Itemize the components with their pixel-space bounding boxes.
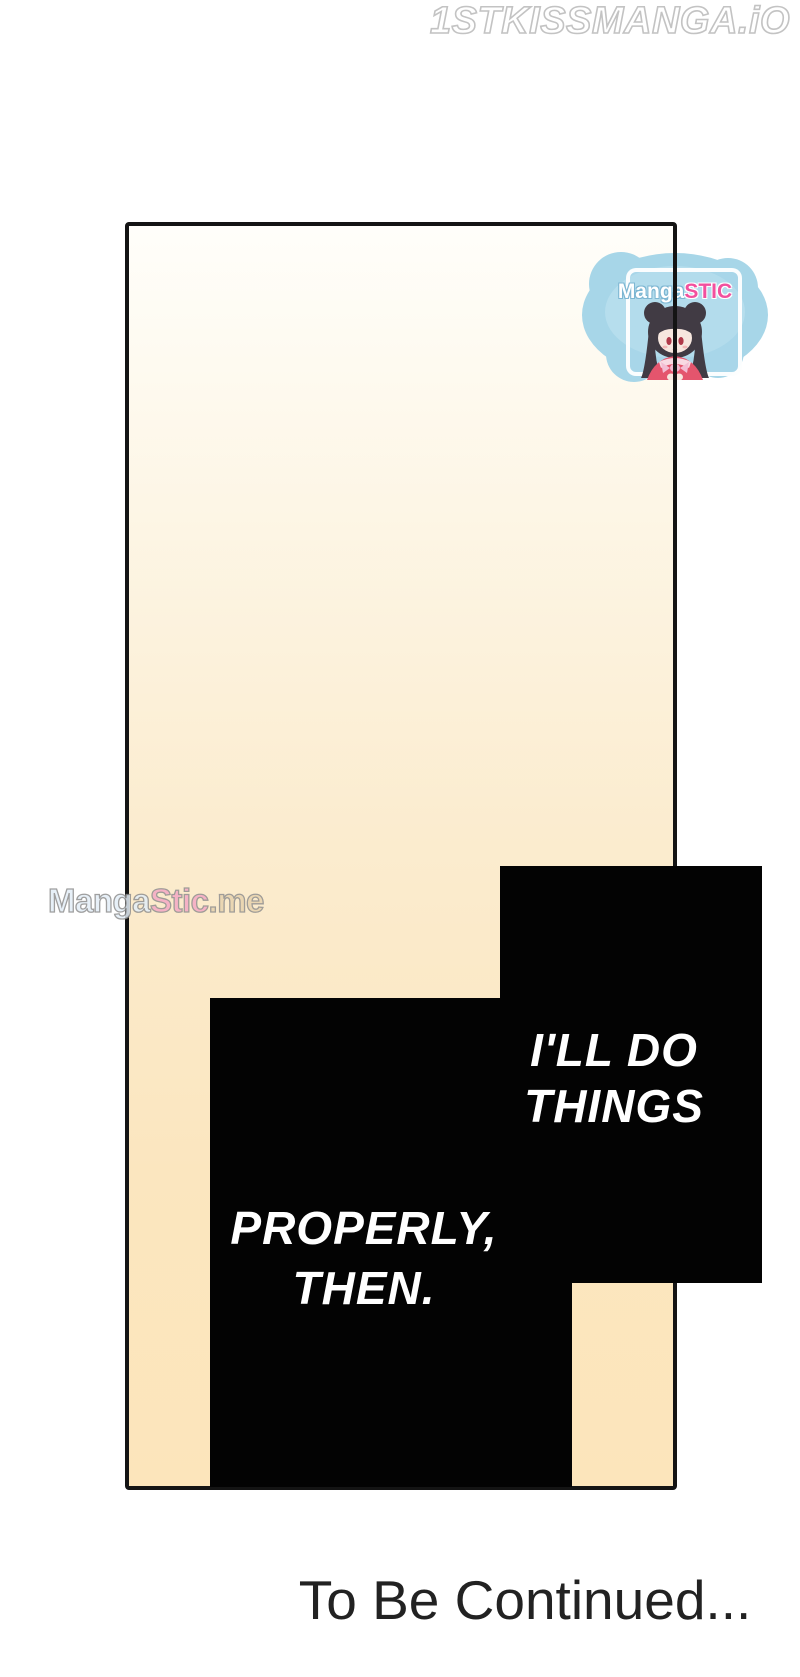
speech-right-line1: I'LL DO xyxy=(478,1022,750,1078)
site-watermark-left: MangaStic.me xyxy=(48,882,264,920)
watermark-left-part3: .me xyxy=(209,882,264,919)
speech-left-line1: PROPERLY, xyxy=(222,1198,506,1258)
watermark-left-part2: Stic xyxy=(150,882,209,919)
speech-text-left: PROPERLY, THEN. xyxy=(222,1198,506,1318)
to-be-continued-text: To Be Continued... xyxy=(265,1568,785,1632)
speech-left-line2: THEN. xyxy=(222,1258,506,1318)
manga-page: 1STKISSMANGA.iO MangaSTIC xyxy=(0,0,800,1677)
speech-right-line2: THINGS xyxy=(478,1078,750,1134)
site-watermark-top: 1STKISSMANGA.iO xyxy=(430,0,790,43)
speech-text-right: I'LL DO THINGS xyxy=(478,1022,750,1134)
panel-border-segment xyxy=(673,244,677,386)
watermark-left-part1: Manga xyxy=(48,882,150,919)
